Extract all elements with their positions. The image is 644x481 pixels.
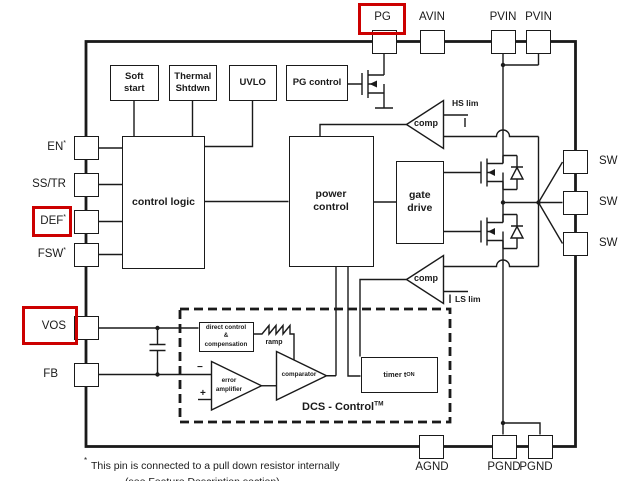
pin-label-sw-2: SW [599,196,618,209]
pin-label-fsw: FSW* [16,248,66,261]
pin-label-avin: AVIN [412,11,452,24]
hs-lim-stub [444,115,469,127]
pin-box-pvin-2 [526,30,551,54]
pin-box-sw-1 [563,150,588,174]
ls-comp-to-timer-wire [360,280,407,357]
high-side-mosfet [481,156,523,190]
ramp-label: ramp [261,339,287,347]
pin-label-pvin-1: PVIN [483,11,523,24]
pg-transistor [348,54,393,109]
comparator-label: comparator [277,372,321,379]
error-amplifier-label: error amplifier [209,377,249,394]
gate-drive-leads [444,173,482,232]
block-gate-drive: gate drive [396,161,444,244]
pin-label-agnd: AGND [412,461,452,474]
pin-label-sw-3: SW [599,237,618,250]
block-power-control: power control [289,136,374,267]
pin-box-fsw [74,243,99,267]
dcs-control-label: DCS - ControlTM [302,401,384,413]
pin-box-pgnd-1 [492,435,517,459]
pin-box-pvin-1 [491,30,516,54]
erroramp-minus-sign: − [197,362,203,373]
pin-label-pgnd-2: PGND [516,461,556,474]
block-timer: timer tON [361,357,438,394]
ls-lim-label: LS lim [455,295,481,304]
block-diagram: PG AVIN PVIN PVIN EN* SS/TR DEF* FSW* VO… [0,0,644,481]
footnote-line-2: (see Feature Description section) [125,476,280,481]
block-direct-control: direct control & compensation [199,322,254,352]
pin-box-en [74,136,99,160]
hs-comp-output-wire [320,125,407,137]
pin-box-sw-2 [563,191,588,215]
block-uvlo: UVLO [229,65,278,102]
block-pg-control: PG control [286,65,348,102]
pg-transistor-arrow [370,81,378,88]
pgnd-tie-wire [503,423,540,435]
block-soft-start: Soft start [110,65,159,102]
low-side-mosfet [481,215,523,249]
hs-comp-input-wire [444,130,539,137]
hs-lim-label: HS lim [452,99,478,108]
ls-comp-label: comp [409,274,443,284]
ls-comp-input-wire [444,260,539,267]
comparator-to-power-wire [327,267,337,376]
pin-box-def [74,210,99,234]
pin-label-fb: FB [16,368,58,381]
footnote-asterisk: * [84,456,87,465]
sw-fan [539,162,563,244]
left-pin-connectors [98,148,122,255]
block-control-logic: control logic [122,136,205,269]
timer-to-power-wire [348,267,361,377]
footnote-line-1: This pin is connected to a pull down res… [91,460,340,472]
block-thermal-shutdown: Thermal Shtdwn [169,65,218,102]
pin-box-sstr [74,173,99,197]
pin-box-sw-3 [563,232,588,256]
pin-box-fb [74,363,99,387]
erroramp-plus-sign: + [200,388,206,399]
pin-box-agnd [419,435,444,459]
pin-label-pvin-2: PVIN [519,11,559,24]
pin-box-avin [420,30,445,54]
pin-box-pgnd-2 [528,435,553,459]
pin-label-en: EN* [16,141,66,154]
capacitor [150,328,166,375]
pin-label-sstr: SS/TR [16,178,66,191]
pvin-rail [503,54,539,164]
highlight-vos [22,306,78,345]
pin-label-sw-1: SW [599,155,618,168]
hs-comp-label: comp [409,119,443,129]
highlight-def [32,206,72,237]
highlight-pg [358,3,406,35]
